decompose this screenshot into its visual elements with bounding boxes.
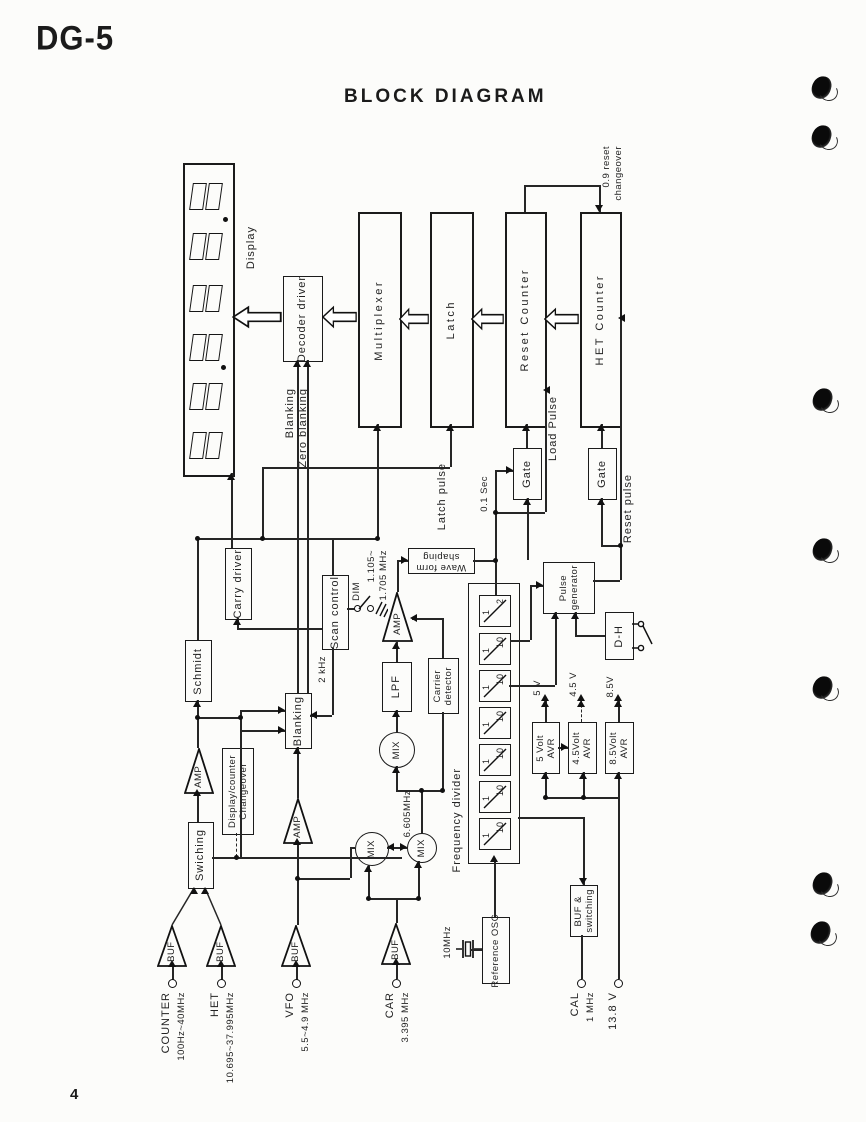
decoder-driver-block: Decoder driver <box>283 276 323 362</box>
wire <box>575 635 605 637</box>
reset-counter-block: Reset Counter <box>505 212 547 428</box>
vfo-range-label: 5.5~4.9 MHz <box>301 992 311 1052</box>
wire <box>593 580 620 582</box>
junction-dot <box>195 536 200 541</box>
wire <box>524 185 599 187</box>
dh-switch <box>632 616 658 661</box>
wire <box>377 424 379 538</box>
arrow <box>543 386 550 394</box>
wire <box>350 847 355 849</box>
wire <box>530 585 532 640</box>
wire <box>470 949 482 951</box>
divider-cell: 12 <box>479 595 511 627</box>
divider-cell: 110 <box>479 744 511 776</box>
wire <box>473 560 495 562</box>
arrow <box>577 694 585 701</box>
dh-block: D-H <box>605 612 634 660</box>
arrow <box>193 700 201 707</box>
arrow <box>387 843 394 851</box>
wire <box>197 700 199 748</box>
arrow <box>579 772 587 779</box>
supply-terminal-label: 13.8 V <box>608 992 620 1030</box>
wire <box>197 538 199 640</box>
arrow <box>614 772 622 779</box>
divider-cell: 110 <box>479 707 511 739</box>
schmidt-block: Schmidt <box>185 640 212 702</box>
arrow <box>551 612 559 619</box>
wire <box>601 498 603 545</box>
arrow <box>392 958 400 965</box>
bus-arrow <box>399 306 429 337</box>
het-input-terminal <box>217 979 226 988</box>
4v5-rail-label: 4.5 V <box>569 672 579 697</box>
wire <box>197 538 377 540</box>
wire-dashed <box>236 833 237 857</box>
arrow <box>614 694 622 701</box>
binding-mark <box>811 919 837 947</box>
display-label: Display <box>246 226 258 269</box>
scan-control-block: Scan control <box>322 575 349 650</box>
arrow <box>227 473 235 480</box>
seven-segment-digit <box>191 432 221 459</box>
junction-dot <box>581 795 586 800</box>
mix-circle: MIX <box>379 732 415 768</box>
het-if-freq-label-1: 1.105~ <box>367 550 377 582</box>
cal-terminal-label: CAL <box>570 992 582 1016</box>
binding-mark <box>813 536 839 564</box>
arrow <box>401 556 408 564</box>
seven-segment-digit <box>191 183 221 210</box>
wire <box>555 612 557 685</box>
wire <box>262 467 450 469</box>
junction-dot <box>493 558 498 563</box>
wire <box>442 712 444 790</box>
binding-mark <box>813 674 839 702</box>
pulse-generator-block: Pulsegenerator <box>543 562 595 614</box>
arrow <box>446 424 454 431</box>
arrow <box>541 772 549 779</box>
junction-dot <box>416 896 421 901</box>
wire <box>396 898 398 923</box>
arrow <box>201 887 209 894</box>
wire <box>297 878 350 880</box>
wire <box>368 898 418 900</box>
model-name: DG-5 <box>36 18 114 58</box>
het-if-freq-label-2: 1.705 MHz <box>379 550 389 600</box>
arrow <box>400 843 407 851</box>
wire <box>396 965 398 979</box>
seven-segment-digit <box>191 233 221 260</box>
divider-cell: 110 <box>479 633 511 665</box>
manual-page: DG-5 BLOCK DIAGRAM 4 Display Decoder dri… <box>0 0 866 1122</box>
bus-arrow <box>471 306 504 337</box>
amp-triangle: AMP <box>184 748 214 795</box>
arrow <box>595 205 603 212</box>
reset-changeover-label-1: 0.9 reset <box>602 146 612 187</box>
wire <box>618 797 620 979</box>
dim-label: DIM <box>352 582 362 601</box>
arrow <box>506 466 513 474</box>
gate1-block: Gate <box>513 448 542 500</box>
crystal-freq-label: 10MHz <box>443 926 453 959</box>
binding-mark <box>812 123 838 151</box>
crystal-icon <box>456 936 482 967</box>
avr-5v-block: 5 VoltAVR <box>532 722 560 774</box>
carrier-detector-block: Carrierdetector <box>428 658 459 714</box>
wire <box>397 560 399 592</box>
swiching-block: Swiching <box>188 822 214 889</box>
arrow <box>392 642 400 649</box>
avr-4v5-block: 4.5VoltAVR <box>568 722 597 774</box>
cal-output-terminal <box>577 979 586 988</box>
seven-segment-digit <box>191 383 221 410</box>
wire <box>197 795 199 822</box>
het-terminal-label: HET <box>210 992 222 1017</box>
arrow <box>278 706 285 714</box>
arrow <box>303 360 311 367</box>
divider-cell: 110 <box>479 781 511 813</box>
gate-time-label: 0.1 Sec <box>480 476 490 512</box>
changeover-block: Display/counterChangeover <box>222 748 254 835</box>
dim-switch-contact <box>367 605 374 612</box>
junction-dot <box>543 795 548 800</box>
wire <box>297 747 299 798</box>
arrow <box>523 498 531 505</box>
arrow <box>293 838 301 845</box>
divider-cell: 110 <box>479 670 511 702</box>
page-number: 4 <box>70 1086 78 1103</box>
bus-arrow <box>232 304 282 335</box>
car-input-terminal <box>392 979 401 988</box>
wire <box>527 498 529 560</box>
arrow <box>490 855 498 862</box>
bus-arrow <box>322 304 357 335</box>
wave-form-shaping-block: Wave formshaping <box>408 548 475 574</box>
counter-range-label: 100Hz~40MHz <box>177 992 187 1061</box>
arrow <box>217 960 225 967</box>
arrow <box>618 314 625 322</box>
het-range-label: 10.695~37.995MHz <box>226 992 236 1083</box>
page-title: BLOCK DIAGRAM <box>344 86 547 108</box>
arrow <box>233 618 241 625</box>
junction-dot <box>493 510 498 515</box>
blanking-block: Blanking <box>285 693 312 749</box>
junction-dot <box>366 896 371 901</box>
lpf-block: LPF <box>382 662 412 712</box>
mix-circle: MIX <box>355 832 389 866</box>
bus-arrow <box>544 306 579 337</box>
latch-block: Latch <box>430 212 474 428</box>
arrow <box>292 960 300 967</box>
wire <box>583 817 585 885</box>
wire <box>442 618 444 658</box>
wire <box>495 470 497 595</box>
car-terminal-label: CAR <box>385 992 397 1018</box>
carry-driver-block: Carry driver <box>225 548 252 620</box>
arrow <box>373 424 381 431</box>
divider-cell: 110 <box>479 818 511 850</box>
wire <box>231 473 233 548</box>
wire <box>197 717 240 719</box>
counter-input-terminal <box>168 979 177 988</box>
wire <box>524 185 526 212</box>
arrow <box>597 424 605 431</box>
arrow <box>293 747 301 754</box>
wire <box>262 467 264 538</box>
counter-terminal-label: COUNTER <box>161 992 173 1053</box>
arrow <box>392 710 400 717</box>
wire <box>495 512 545 514</box>
binding-mark <box>813 386 839 414</box>
arrow <box>561 743 568 751</box>
cal-range-label: 1 MHz <box>586 992 596 1022</box>
buf-switching-block: BUF &switching <box>570 885 598 937</box>
wire <box>332 538 334 575</box>
blanking-wire-label: Blanking <box>285 388 297 438</box>
junction-dot <box>234 855 239 860</box>
arrow <box>579 878 587 885</box>
wire <box>581 935 583 979</box>
wire <box>240 710 242 857</box>
wire <box>350 848 352 878</box>
junction-dot <box>375 536 380 541</box>
arrow <box>410 614 417 622</box>
multiplexer-block: Multiplexer <box>358 212 402 428</box>
2khz-label: 2 kHz <box>318 656 328 683</box>
arrow <box>536 581 543 589</box>
supply-input-terminal <box>614 979 623 988</box>
arrow <box>541 700 549 707</box>
vfo-input-terminal <box>292 979 301 988</box>
avr-8v5-block: 8.5VoltAVR <box>605 722 634 774</box>
display-box <box>183 163 235 477</box>
latch-pulse-label: Latch pulse <box>437 463 449 530</box>
wire <box>510 640 530 642</box>
arrow <box>190 887 198 894</box>
arrow <box>392 766 400 773</box>
arrow <box>414 861 422 868</box>
seven-segment-digit <box>191 285 221 312</box>
het-counter-block: HET Counter <box>580 212 622 428</box>
junction-dot <box>195 715 200 720</box>
arrow <box>522 424 530 431</box>
wire <box>237 628 322 630</box>
arrow <box>571 612 579 619</box>
junction-dot <box>419 788 424 793</box>
wire <box>212 857 402 859</box>
seven-segment-digit <box>191 334 221 361</box>
binding-mark <box>813 870 839 898</box>
frequency-divider-label: Frequency divider <box>452 768 464 872</box>
wire <box>494 862 496 917</box>
arrow <box>364 865 372 872</box>
wire <box>518 817 583 819</box>
decimal-point <box>223 217 228 222</box>
arrow <box>541 694 549 701</box>
junction-dot <box>238 715 243 720</box>
reference-osc-block: Reference OSC <box>482 917 510 984</box>
junction-dot <box>295 876 300 881</box>
zero-blanking-wire-label: Zero blanking <box>298 388 310 468</box>
vfo-terminal-label: VFO <box>285 992 297 1018</box>
wire <box>421 790 423 833</box>
binding-mark <box>812 74 838 102</box>
wire <box>332 648 334 715</box>
car-range-label: 3.395 MHz <box>401 992 411 1042</box>
reset-changeover-label-2: changeover <box>614 146 624 201</box>
gate2-block: Gate <box>588 448 617 500</box>
junction-dot <box>440 788 445 793</box>
reset-pulse-label: Reset pulse <box>623 474 635 543</box>
arrow <box>597 498 605 505</box>
6605khz-label: 6.605MHz <box>403 790 413 837</box>
arrow <box>193 789 201 796</box>
arrow <box>278 726 285 734</box>
junction-dot <box>260 536 265 541</box>
arrow <box>310 711 317 719</box>
decimal-point <box>221 365 226 370</box>
load-pulse-label: Load Pulse <box>548 396 560 461</box>
arrow <box>168 960 176 967</box>
arrow <box>293 360 301 367</box>
